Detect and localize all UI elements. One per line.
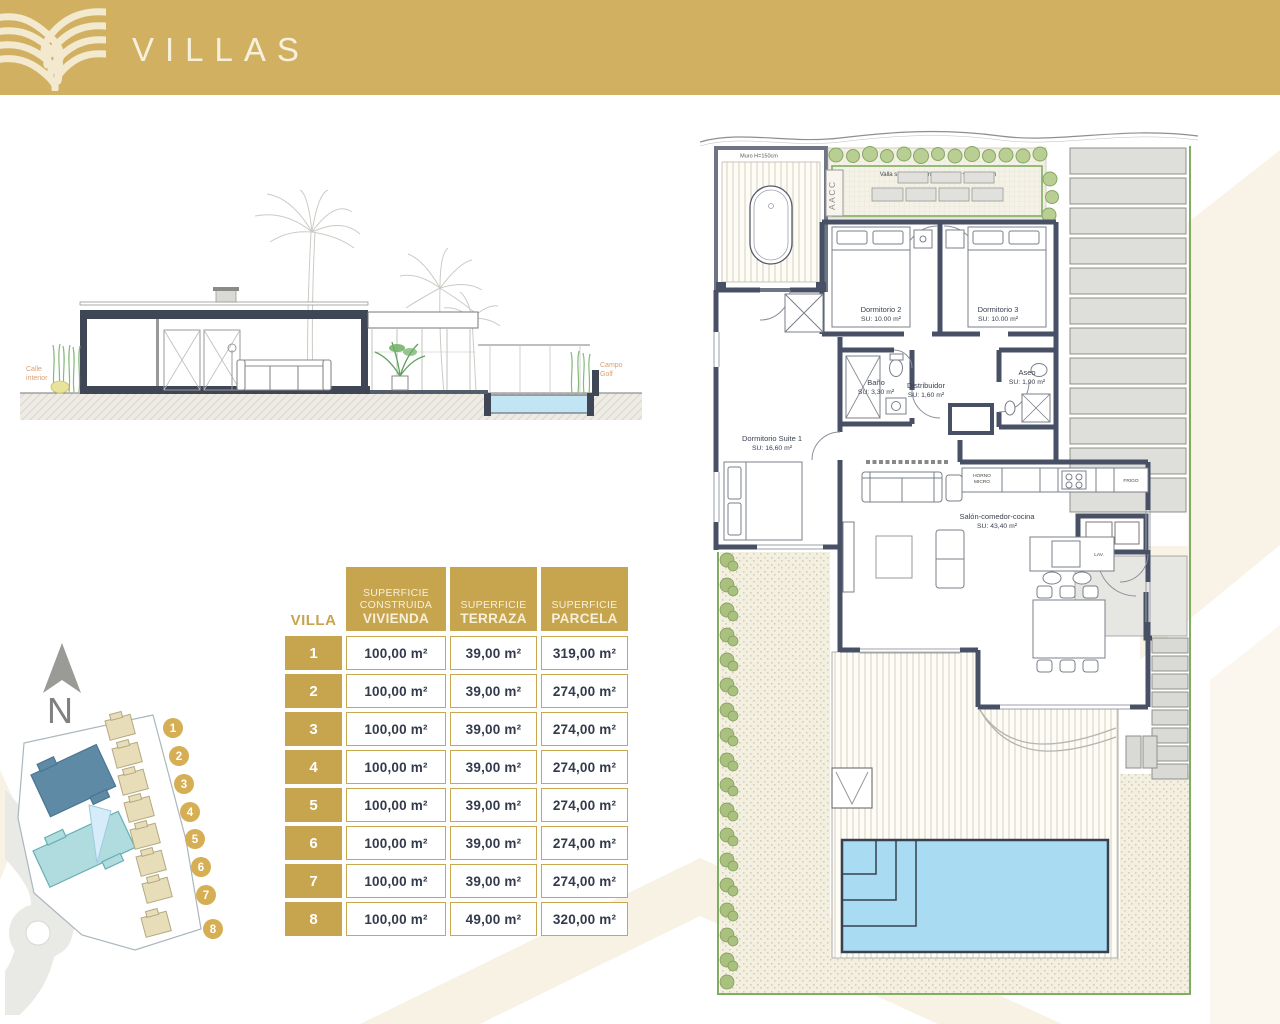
north-label: N bbox=[47, 690, 73, 731]
room-label-bano: Baño bbox=[867, 378, 885, 387]
villa-number: 5 bbox=[285, 788, 342, 822]
kitchen-sink-label: LAV. bbox=[1094, 552, 1104, 558]
bed-suite bbox=[724, 462, 802, 540]
villa-floor-plan: Muro H=150cm Valla simple torsión H= 160… bbox=[700, 122, 1200, 1012]
page-title: VILLAS bbox=[132, 31, 310, 69]
table-row: 4 100,00 m² 39,00 m² 274,00 m² bbox=[285, 750, 632, 784]
svg-text:SU: 10.00 m²: SU: 10.00 m² bbox=[978, 316, 1019, 323]
brand-logo-waves-icon bbox=[0, 7, 106, 91]
svg-text:MICRO: MICRO bbox=[974, 479, 990, 485]
svg-text:SU: 1,90 m²: SU: 1,90 m² bbox=[1009, 379, 1046, 386]
ac-label: AACC bbox=[827, 180, 837, 210]
svg-text:Golf: Golf bbox=[600, 371, 613, 378]
room-label-aseo: Aseo bbox=[1018, 368, 1035, 377]
svg-text:4: 4 bbox=[187, 807, 194, 819]
outdoor-shower bbox=[832, 768, 872, 808]
wardrobe bbox=[785, 294, 823, 332]
svg-text:interior: interior bbox=[26, 375, 48, 382]
label-calle-interior: Calle bbox=[26, 366, 42, 373]
room-label-dorm2: Dormitorio 2 bbox=[861, 305, 902, 314]
column-header-terraza: SUPERFICIE TERRAZA bbox=[450, 567, 537, 631]
street-edge bbox=[700, 132, 1198, 146]
villa-number: 1 bbox=[285, 636, 342, 670]
column-header-parcela: SUPERFICIE PARCELA bbox=[541, 567, 628, 631]
table-header-row: VILLA SUPERFICIE CONSTRUIDA VIVIENDA SUP… bbox=[285, 567, 632, 631]
north-arrow-icon: N bbox=[43, 643, 81, 731]
table-row: 5 100,00 m² 39,00 m² 274,00 m² bbox=[285, 788, 632, 822]
svg-text:6: 6 bbox=[198, 862, 204, 874]
svg-text:7: 7 bbox=[203, 890, 209, 902]
kitchen-fridge-label: FRIGO bbox=[1123, 478, 1138, 484]
villa-section-drawing: Calle interior Campo Golf bbox=[20, 190, 650, 425]
site-plan: 1 2 3 4 5 6 7 8 N bbox=[5, 635, 245, 1015]
svg-text:SU: 3,30 m²: SU: 3,30 m² bbox=[858, 389, 895, 396]
villa-spec-table: VILLA SUPERFICIE CONSTRUIDA VIVIENDA SUP… bbox=[285, 567, 632, 940]
villa-number: 2 bbox=[285, 674, 342, 708]
svg-text:SU: 43,40 m²: SU: 43,40 m² bbox=[977, 523, 1018, 530]
villa-number: 7 bbox=[285, 864, 342, 898]
room-label-suite: Dormitorio Suite 1 bbox=[742, 434, 802, 443]
table-row: 1 100,00 m² 39,00 m² 319,00 m² bbox=[285, 636, 632, 670]
house-section bbox=[80, 287, 599, 396]
side-garden-strip: Valla simple torsión H= 160cm + vegetaci… bbox=[826, 147, 1059, 223]
svg-text:8: 8 bbox=[210, 924, 217, 936]
svg-text:SU: 10.00 m²: SU: 10.00 m² bbox=[861, 316, 902, 323]
svg-text:2: 2 bbox=[176, 751, 182, 763]
villa-number: 8 bbox=[285, 902, 342, 936]
ground bbox=[20, 393, 642, 420]
svg-text:SU: 16,60 m²: SU: 16,60 m² bbox=[752, 445, 793, 452]
shelf-dots bbox=[866, 460, 948, 464]
brochure-page: VILLAS bbox=[0, 0, 1280, 1024]
label-campo-golf: Campo bbox=[600, 362, 623, 369]
roundabout bbox=[26, 921, 50, 945]
room-label-salon: Salón-comedor-cocina bbox=[959, 512, 1035, 521]
table-row: 8 100,00 m² 49,00 m² 320,00 m² bbox=[285, 902, 632, 936]
potted-plant bbox=[375, 342, 425, 390]
swimming-pool bbox=[842, 840, 1108, 952]
sofas bbox=[843, 472, 964, 592]
table-row: 2 100,00 m² 39,00 m² 274,00 m² bbox=[285, 674, 632, 708]
svg-text:5: 5 bbox=[192, 834, 199, 846]
kitchen-oven-label: HORNO bbox=[973, 473, 991, 479]
porch-glazing bbox=[372, 328, 475, 390]
svg-text:SU: 1,60 m²: SU: 1,60 m² bbox=[908, 392, 945, 399]
villa-number: 6 bbox=[285, 826, 342, 860]
villa-number: 4 bbox=[285, 750, 342, 784]
villa-column-header: VILLA bbox=[285, 567, 342, 631]
sofa bbox=[237, 360, 331, 390]
terrace-deck bbox=[832, 652, 1118, 958]
room-label-distribuidor: Distribuidor bbox=[907, 381, 945, 390]
villa-number: 3 bbox=[285, 712, 342, 746]
svg-text:1: 1 bbox=[170, 723, 177, 735]
table-row: 3 100,00 m² 39,00 m² 274,00 m² bbox=[285, 712, 632, 746]
room-label-dorm3: Dormitorio 3 bbox=[978, 305, 1019, 314]
svg-text:3: 3 bbox=[181, 779, 187, 791]
column-header-vivienda: SUPERFICIE CONSTRUIDA VIVIENDA bbox=[346, 567, 446, 631]
wall-note: Muro H=150cm bbox=[740, 154, 778, 160]
table-row: 7 100,00 m² 39,00 m² 274,00 m² bbox=[285, 864, 632, 898]
entrance-patio: Muro H=150cm bbox=[716, 148, 826, 292]
table-row: 6 100,00 m² 39,00 m² 274,00 m² bbox=[285, 826, 632, 860]
page-header: VILLAS bbox=[0, 0, 1280, 95]
